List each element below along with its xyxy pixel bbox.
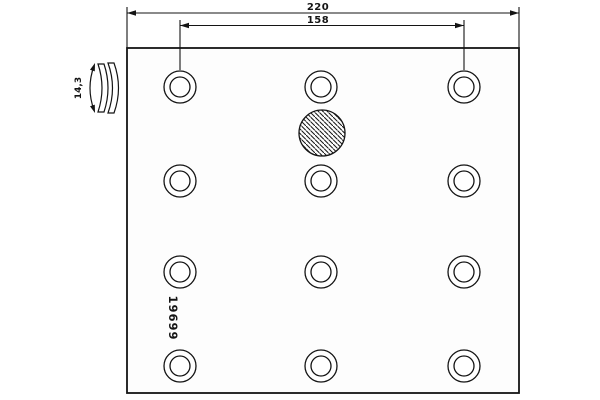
drawing-canvas: 220 158 14,3: [0, 0, 600, 400]
lining-section-band: [108, 63, 119, 113]
rivet-hole: [305, 71, 337, 103]
rivet-hole: [164, 256, 196, 288]
rivet-hole: [305, 350, 337, 382]
rivet-hole: [164, 350, 196, 382]
hatched-hole: [299, 110, 345, 156]
arrowhead-up-icon: [90, 63, 95, 71]
rivet-hole: [164, 71, 196, 103]
rivet-hole: [448, 256, 480, 288]
brake-lining-diagram: 220 158 14,3: [0, 0, 600, 400]
arrowhead-down-icon: [90, 105, 95, 113]
thickness-measure-arc: [90, 66, 94, 110]
arrowhead-left-icon: [180, 23, 189, 28]
thickness-label: 14,3: [74, 77, 84, 99]
arrowhead-left-icon: [127, 10, 136, 15]
hole-spacing-label: 158: [307, 15, 329, 26]
rivet-hole: [164, 165, 196, 197]
rivet-hole: [305, 165, 337, 197]
arrowhead-right-icon: [510, 10, 519, 15]
rivet-hole: [448, 165, 480, 197]
rivet-hole: [448, 350, 480, 382]
rivet-hole: [448, 71, 480, 103]
lining-section-band: [98, 64, 108, 112]
arrowhead-right-icon: [455, 23, 464, 28]
thickness-symbol: 14,3: [74, 63, 119, 113]
overall-width-label: 220: [307, 2, 329, 13]
part-number-label: 19699: [166, 295, 180, 340]
rivet-hole: [305, 256, 337, 288]
